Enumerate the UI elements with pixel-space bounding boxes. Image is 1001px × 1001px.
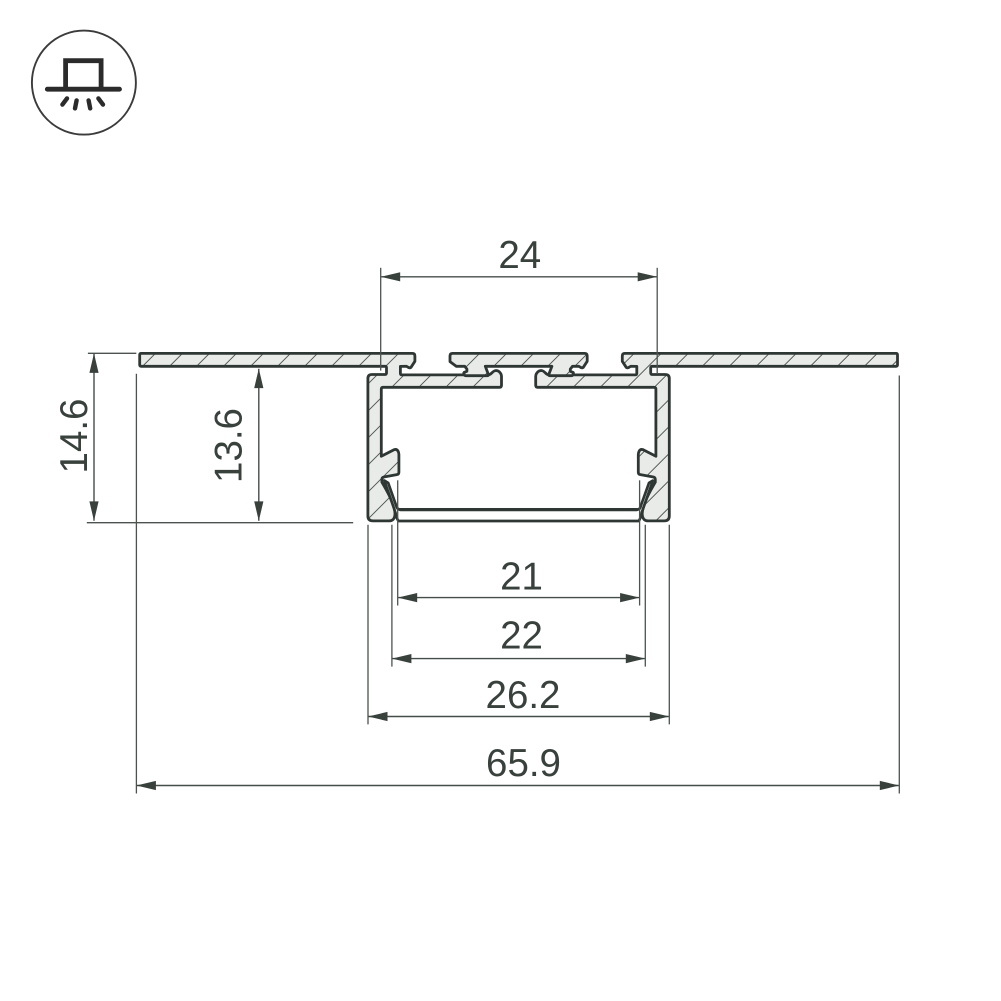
svg-text:21: 21 bbox=[500, 555, 543, 598]
svg-text:13.6: 13.6 bbox=[207, 408, 250, 483]
svg-text:14.6: 14.6 bbox=[53, 399, 96, 474]
svg-text:26.2: 26.2 bbox=[486, 674, 561, 717]
svg-text:65.9: 65.9 bbox=[486, 742, 561, 785]
svg-text:24: 24 bbox=[498, 234, 541, 277]
svg-text:22: 22 bbox=[500, 615, 543, 658]
